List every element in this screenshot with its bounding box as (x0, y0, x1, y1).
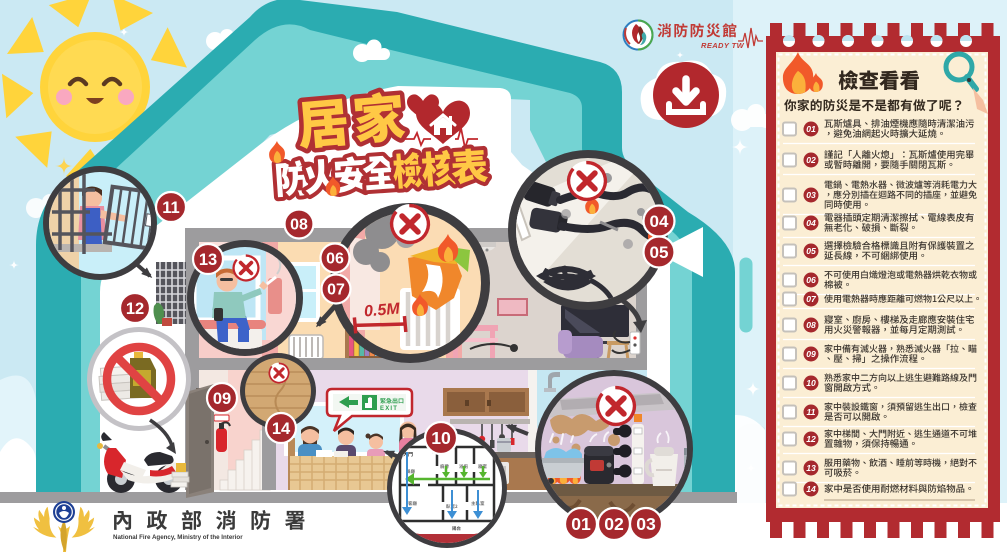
svg-text:12: 12 (806, 434, 816, 444)
svg-text:06: 06 (326, 251, 344, 268)
svg-text:0.5M: 0.5M (363, 300, 401, 320)
svg-text:09: 09 (806, 349, 816, 359)
svg-text:08: 08 (806, 320, 816, 330)
svg-text:05: 05 (806, 246, 816, 256)
svg-text:EXIT: EXIT (380, 406, 398, 412)
svg-text:01: 01 (571, 514, 591, 534)
svg-text:04: 04 (650, 212, 669, 231)
svg-text:01: 01 (806, 124, 816, 134)
svg-text:13: 13 (199, 251, 217, 269)
svg-text:14: 14 (272, 420, 291, 438)
svg-text:07: 07 (806, 294, 817, 304)
svg-text:07: 07 (327, 282, 345, 299)
svg-text:03: 03 (636, 514, 656, 534)
svg-text:11: 11 (807, 407, 816, 417)
svg-text:04: 04 (806, 218, 816, 228)
svg-text:13: 13 (806, 463, 816, 473)
svg-text:READY TW: READY TW (701, 41, 745, 50)
svg-text:11: 11 (162, 199, 179, 217)
svg-text:02: 02 (604, 514, 624, 534)
svg-text:02: 02 (806, 155, 816, 165)
svg-text:14: 14 (806, 484, 816, 494)
svg-text:National Fire Agency, Ministry: National Fire Agency, Ministry of the In… (113, 534, 243, 541)
svg-text:08: 08 (290, 217, 308, 234)
svg-text:06: 06 (806, 275, 816, 285)
svg-text:09: 09 (213, 390, 231, 408)
svg-text:12: 12 (126, 300, 144, 318)
svg-text:10: 10 (806, 378, 816, 388)
svg-text:10: 10 (431, 428, 451, 448)
svg-text:03: 03 (806, 190, 816, 200)
svg-text:05: 05 (650, 243, 669, 262)
